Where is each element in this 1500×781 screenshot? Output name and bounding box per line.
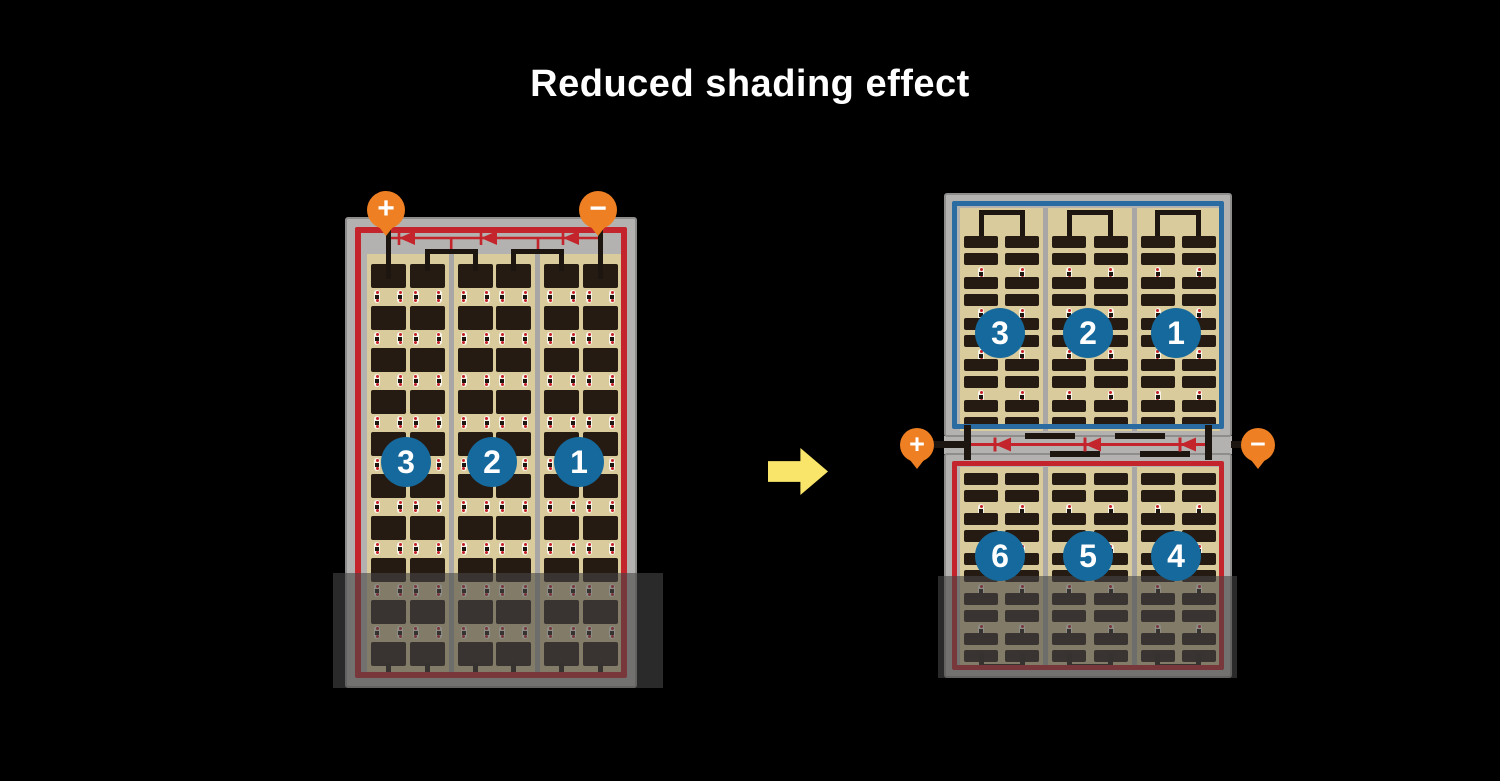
- plus-terminal-icon: +: [900, 428, 934, 462]
- arrow-right-icon: [768, 448, 828, 495]
- minus-terminal-icon: −: [1241, 428, 1275, 462]
- plus-terminal-label: +: [909, 429, 925, 459]
- string-badge: 1: [554, 437, 604, 487]
- minus-terminal-label: −: [1250, 429, 1266, 459]
- string-badge: 5: [1063, 531, 1113, 581]
- reduced-shading-diagram: Reduced shading effect + − 3 2 1 + − 3 2…: [0, 0, 1500, 781]
- plus-terminal-label: +: [377, 192, 395, 225]
- string-badge: 2: [1063, 308, 1113, 358]
- string-badge: 4: [1151, 531, 1201, 581]
- string-badge: 2: [467, 437, 517, 487]
- minus-terminal-label: −: [589, 192, 607, 225]
- shading-overlay-left: [333, 573, 663, 688]
- minus-terminal-icon: −: [579, 191, 617, 229]
- plus-terminal-icon: +: [367, 191, 405, 229]
- shading-overlay-right: [938, 576, 1237, 678]
- bus-bar-n-connector: [511, 249, 564, 271]
- string-badge: 6: [975, 531, 1025, 581]
- string-badge: 1: [1151, 308, 1201, 358]
- bus-bar-n-connector: [425, 249, 478, 271]
- diagram-title: Reduced shading effect: [0, 63, 1500, 106]
- junction-bypass-diode-line: [930, 420, 1270, 470]
- string-badge: 3: [975, 308, 1025, 358]
- string-badge: 3: [381, 437, 431, 487]
